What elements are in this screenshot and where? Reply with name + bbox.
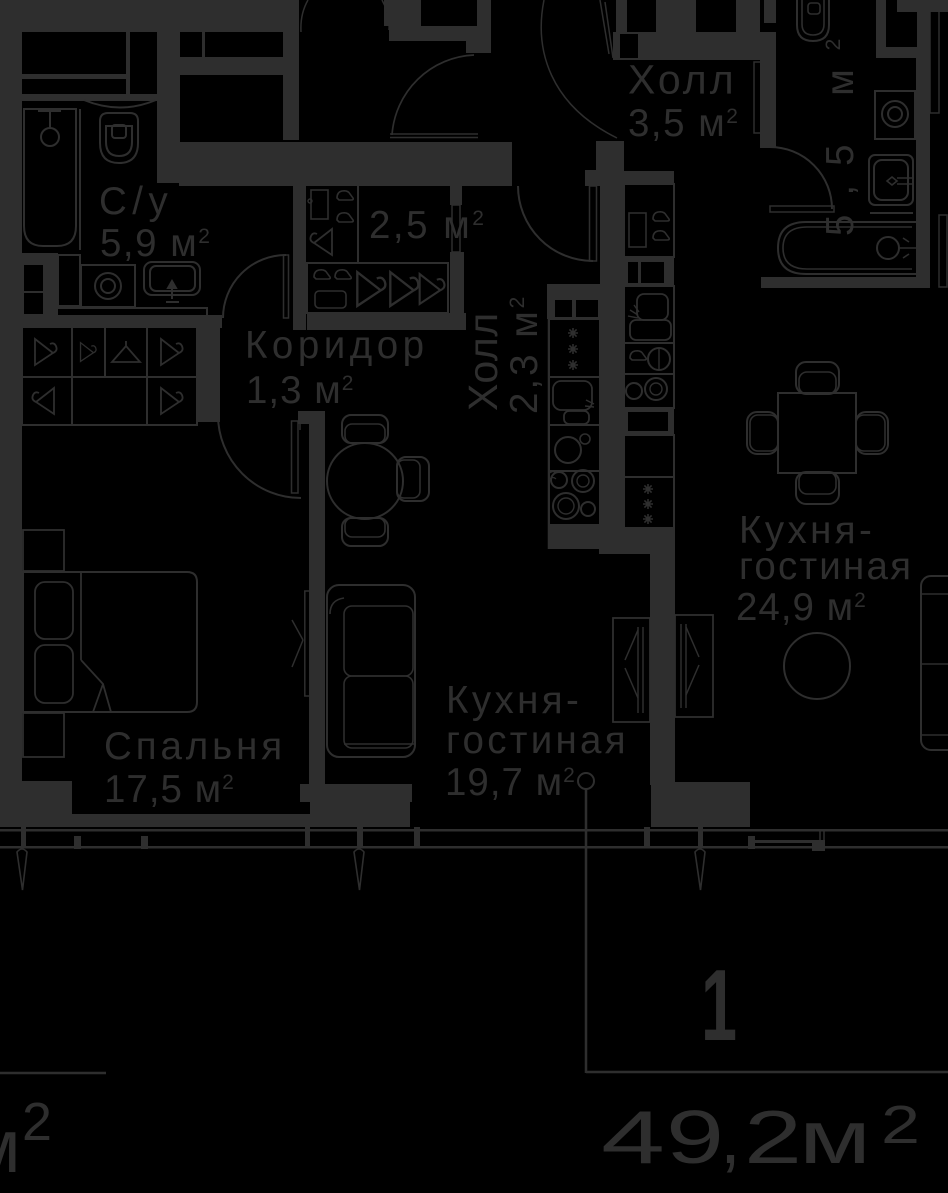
svg-text:2,5 м2: 2,5 м2 <box>369 204 486 247</box>
svg-text:24,9 м2: 24,9 м2 <box>736 586 867 629</box>
svg-text:17,5 м2: 17,5 м2 <box>104 768 235 811</box>
svg-text:5,9 м2: 5,9 м2 <box>100 222 211 265</box>
svg-text:Кухня-: Кухня- <box>446 679 582 722</box>
svg-text:Холл: Холл <box>460 312 506 411</box>
svg-text:м: м <box>799 1095 871 1179</box>
svg-text:гостиная: гостиная <box>739 545 913 588</box>
svg-text:2: 2 <box>881 1096 920 1155</box>
svg-text:Коридор: Коридор <box>245 324 429 367</box>
svg-text:3,5 м2: 3,5 м2 <box>628 102 739 145</box>
svg-text:Спальня: Спальня <box>104 725 286 768</box>
svg-text:гостиная: гостиная <box>446 719 629 762</box>
svg-text:1: 1 <box>701 948 737 1062</box>
svg-text:2: 2 <box>744 1095 802 1179</box>
svg-text:5,5 м2: 5,5 м2 <box>819 20 862 236</box>
svg-text:9: 9 <box>666 1095 724 1179</box>
svg-text:м: м <box>0 1104 21 1188</box>
svg-text:4: 4 <box>601 1095 665 1179</box>
svg-text:С/у: С/у <box>99 180 173 223</box>
svg-text:1,3 м2: 1,3 м2 <box>246 369 354 412</box>
svg-text:2,3 м2: 2,3 м2 <box>503 294 546 414</box>
svg-text:2: 2 <box>22 1093 52 1152</box>
svg-text:Холл: Холл <box>628 57 737 103</box>
svg-text:19,7 м2: 19,7 м2 <box>445 761 576 804</box>
svg-text:,: , <box>720 1095 741 1179</box>
